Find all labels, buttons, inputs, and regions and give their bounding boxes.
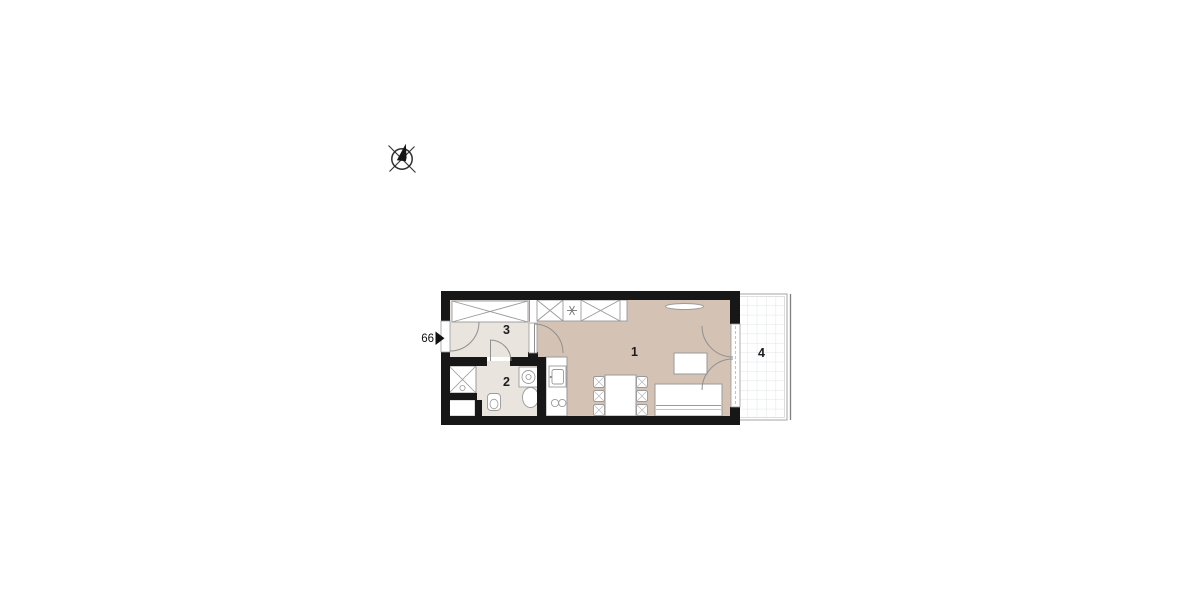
wall-segment [730, 407, 740, 425]
wardrobe [452, 301, 528, 322]
room-label-living: 1 [631, 345, 638, 359]
room-label-bathroom: 2 [503, 375, 510, 389]
shaft-niche [449, 400, 475, 416]
wall-segment [537, 357, 546, 416]
floor-plan: 1 2 3 4 66 [0, 0, 1200, 600]
wall-segment [441, 291, 740, 300]
toilet [488, 394, 501, 411]
wall-segment [730, 291, 740, 324]
bathroom-sink [523, 388, 539, 408]
room-label-balcony: 4 [758, 346, 765, 360]
entrance-door-frame [441, 321, 450, 352]
radiator [666, 304, 704, 310]
dining-table [605, 375, 636, 416]
shower [449, 366, 476, 393]
compass-icon [389, 144, 416, 173]
wall-segment [441, 291, 450, 322]
wall-segment [475, 400, 482, 416]
kitchen-cabinets [537, 300, 627, 321]
coffee-table [674, 353, 707, 374]
interior-door-frame [529, 323, 537, 353]
balcony-door-frame [731, 324, 740, 407]
floor-plan-page: 1 2 3 4 66 [0, 0, 1200, 600]
room-label-hallway: 3 [503, 323, 510, 337]
washing-machine [519, 367, 538, 387]
wall-segment [443, 357, 487, 366]
wall-segment [441, 416, 740, 425]
sofa-bed [655, 384, 722, 416]
wall-segment [441, 393, 477, 400]
kitchen-sink [549, 366, 566, 387]
unit-number-label: 66 [421, 333, 434, 345]
